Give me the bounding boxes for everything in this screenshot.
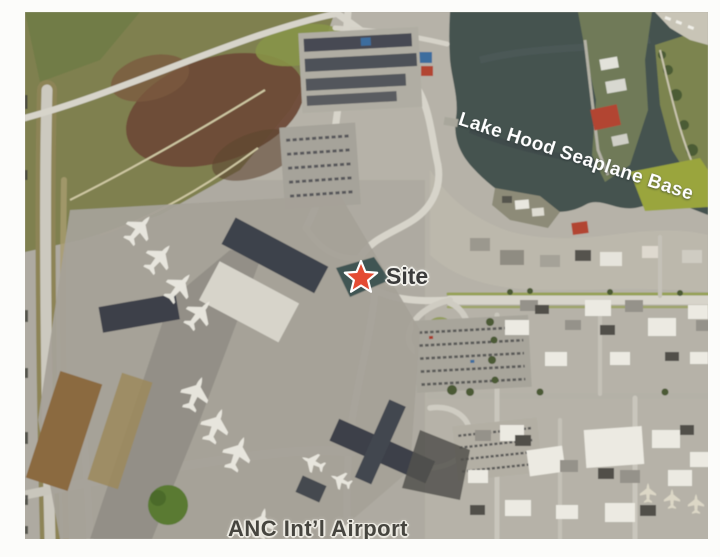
aerial-photo: Lake Hood Seaplane Base Site ANC Int’l A… xyxy=(25,12,708,539)
site-star-icon xyxy=(341,260,381,294)
site-star-shape xyxy=(345,261,377,292)
site-label: Site xyxy=(386,265,428,288)
anc-airport-label: ANC Int’l Airport xyxy=(228,518,408,539)
